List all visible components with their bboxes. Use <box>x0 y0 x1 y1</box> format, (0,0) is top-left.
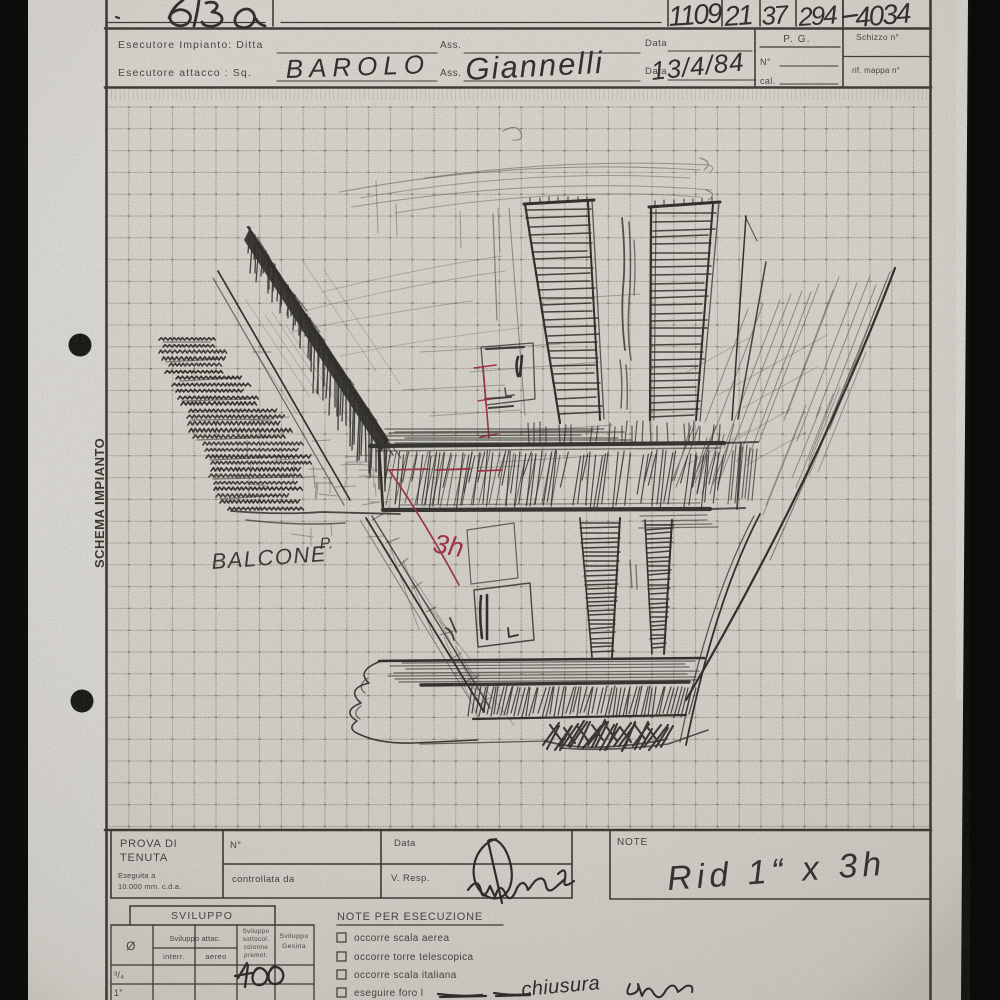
svg-text:interr.: interr. <box>163 952 185 961</box>
svg-text:premot.: premot. <box>243 952 268 959</box>
svg-text:occorre scala aerea: occorre scala aerea <box>354 933 449 944</box>
svg-text:Sviluppo: Sviluppo <box>279 933 308 940</box>
svg-text:Data: Data <box>394 838 416 849</box>
svg-text:N°: N° <box>230 840 241 851</box>
svg-text:controllata da: controllata da <box>232 874 295 885</box>
svg-text:PROVA DI: PROVA DI <box>120 838 178 850</box>
svg-text:NOTE: NOTE <box>617 837 648 848</box>
svg-text:occorre torre telescopica: occorre torre telescopica <box>354 952 474 963</box>
svg-text:V. Resp.: V. Resp. <box>391 873 430 884</box>
svg-text:TENUTA: TENUTA <box>120 852 168 864</box>
svg-text:1": 1" <box>114 988 123 998</box>
svg-text:colonne: colonne <box>244 944 269 951</box>
svg-text:Ø: Ø <box>126 939 136 953</box>
svg-text:Sviluppo: Sviluppo <box>243 928 270 935</box>
svg-text:NOTE PER ESECUZIONE: NOTE PER ESECUZIONE <box>337 911 483 923</box>
svg-text:10.000 mm. c.d.a.: 10.000 mm. c.d.a. <box>118 882 181 891</box>
svg-text:occorre scala italiana: occorre scala italiana <box>354 970 457 981</box>
svg-text:Gesina: Gesina <box>282 943 306 950</box>
svg-text:Sviluppo attac.: Sviluppo attac. <box>169 934 220 943</box>
svg-text:aereo: aereo <box>205 952 226 961</box>
svg-text:eseguire foro l: eseguire foro l <box>354 988 423 999</box>
svg-text:³/₄: ³/₄ <box>114 970 124 980</box>
svg-text:SVILUPPO: SVILUPPO <box>171 910 233 922</box>
svg-text:sottocol.: sottocol. <box>243 936 270 943</box>
svg-text:Eseguita a: Eseguita a <box>118 871 156 880</box>
